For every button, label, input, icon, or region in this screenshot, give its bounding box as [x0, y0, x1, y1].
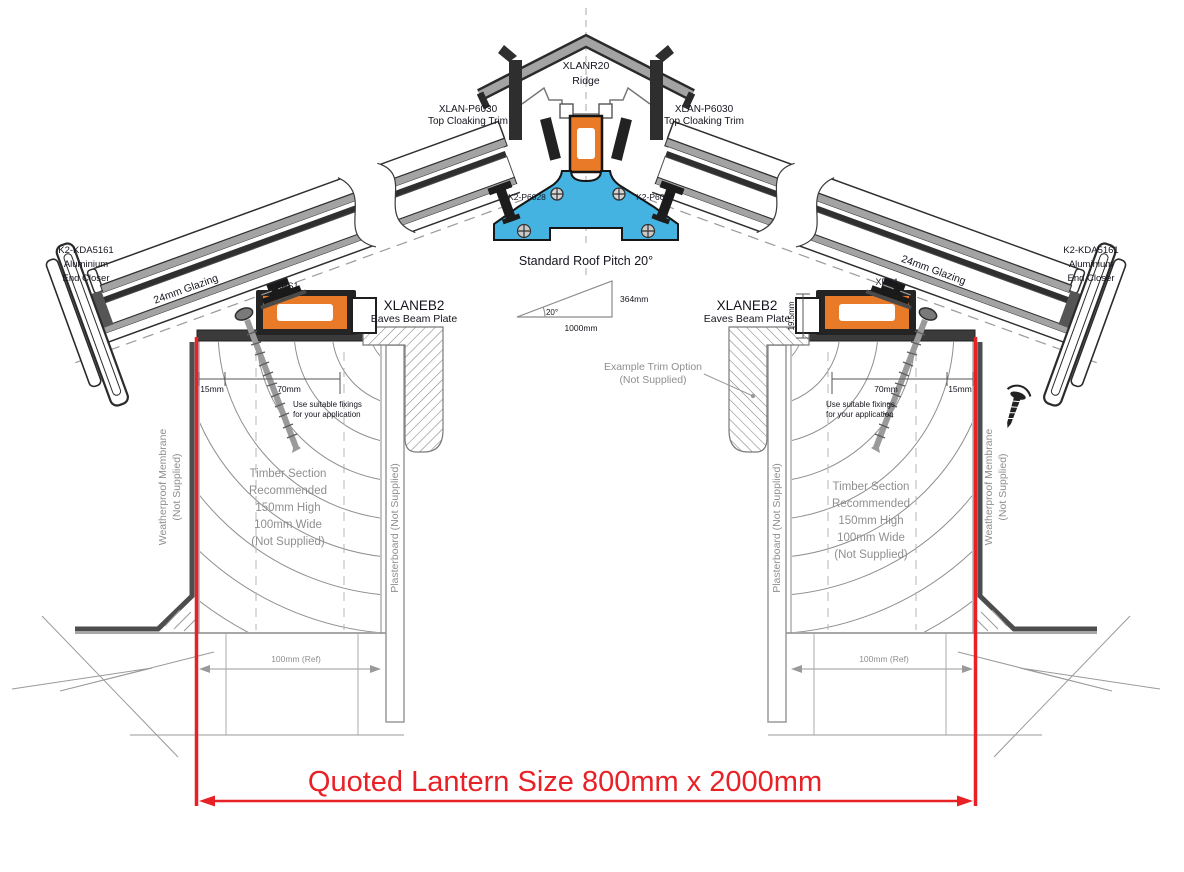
trim-option-l2: (Not Supplied) [619, 374, 686, 386]
membrane-note-l2-right: (Not Supplied) [997, 453, 1009, 520]
end-closer-l2-right: Aluminium [1069, 259, 1113, 270]
dim-70mm-right: 70mm [874, 384, 898, 394]
pitch-angle: 20° [546, 308, 558, 317]
timber-note-l5-right: (Not Supplied) [834, 549, 908, 561]
timber-note-l2-right: Recommended [832, 498, 910, 510]
fixing-note-l1-right: Use suitable fixings [826, 400, 895, 409]
dim-19p5mm: 19.5mm [787, 301, 796, 330]
eaves-beam-name-right: Eaves Beam Plate [704, 313, 791, 325]
end-closer-l1-left: K2-KDA5161 [58, 245, 113, 256]
pitch-run: 1000mm [564, 323, 597, 333]
pitch-rise: 364mm [620, 294, 648, 304]
end-closer-l3-left: End Closer [63, 273, 110, 284]
plasterboard-note-left: Plasterboard (Not Supplied) [389, 463, 401, 593]
screw-icon [996, 383, 1032, 432]
ridge-fixing-label-left: K2-P6028 [508, 192, 546, 202]
end-closer-l3-right: End Closer [1068, 273, 1115, 284]
top-cloaking-code-right: XLAN-P6030 [675, 104, 734, 115]
trim-riser-right [650, 60, 663, 140]
ref-width-left: 100mm (Ref) [271, 654, 321, 664]
pitch-triangle [517, 281, 612, 317]
ridge-fixing-label-right: K2-P6028 [636, 192, 674, 202]
timber-note-l3-left: 150mm High [255, 502, 320, 514]
top-cloaking-code-left: XLAN-P6030 [439, 104, 498, 115]
top-cloaking-name-left: Top Cloaking Trim [428, 116, 508, 127]
quoted-size-label: Quoted Lantern Size 800mm x 2000mm [308, 766, 822, 798]
eaves-beam-code-right: XLANEB2 [717, 298, 778, 313]
timber-note-l2-left: Recommended [249, 485, 327, 497]
lantern-section-drawing: 24mm Glazing 24mm Glazing [0, 0, 1184, 872]
ridge-code-label: XLANR20 [563, 60, 610, 72]
timber-note-l5-left: (Not Supplied) [251, 536, 325, 548]
plasterboard-note-right: Plasterboard (Not Supplied) [771, 463, 783, 593]
timber-note-l4-right: 100mm Wide [837, 532, 905, 544]
end-closer-l2-left: Aluminium [64, 259, 108, 270]
timber-note-l1-left: Timber Section [250, 468, 327, 480]
fixing-note-l1-left: Use suitable fixings [293, 400, 362, 409]
membrane-note-l1-left: Weatherproof Membrane [157, 429, 169, 546]
dim-15mm-left: 15mm [200, 384, 224, 394]
ridge-name-label: Ridge [572, 75, 600, 87]
eaves-beam-code-left: XLANEB2 [384, 298, 445, 313]
xps1-label-left: XPS1 [275, 281, 298, 291]
xps1-label-right: XPS1 [875, 277, 898, 287]
fixing-note-l2-right: for your application [826, 410, 894, 419]
fixing-note-l2-left: for your application [293, 410, 361, 419]
membrane-note-l1-right: Weatherproof Membrane [983, 429, 995, 546]
technical-drawing-page: 24mm Glazing 24mm Glazing [0, 0, 1184, 872]
timber-note-l4-left: 100mm Wide [254, 519, 322, 531]
eaves-beam-name-left: Eaves Beam Plate [371, 313, 458, 325]
ref-width-right: 100mm (Ref) [859, 654, 909, 664]
membrane-note-l2-left: (Not Supplied) [171, 453, 183, 520]
dim-70mm-left: 70mm [277, 384, 301, 394]
pitch-title: Standard Roof Pitch 20° [519, 254, 653, 268]
timber-note-l3-right: 150mm High [838, 515, 903, 527]
end-closer-l1-right: K2-KDA5161 [1063, 245, 1118, 256]
trim-option-l1: Example Trim Option [604, 361, 702, 373]
timber-note-l1-right: Timber Section [833, 481, 910, 493]
trim-riser-left [509, 60, 522, 140]
dim-15mm-right: 15mm [948, 384, 972, 394]
top-cloaking-name-right: Top Cloaking Trim [664, 116, 744, 127]
